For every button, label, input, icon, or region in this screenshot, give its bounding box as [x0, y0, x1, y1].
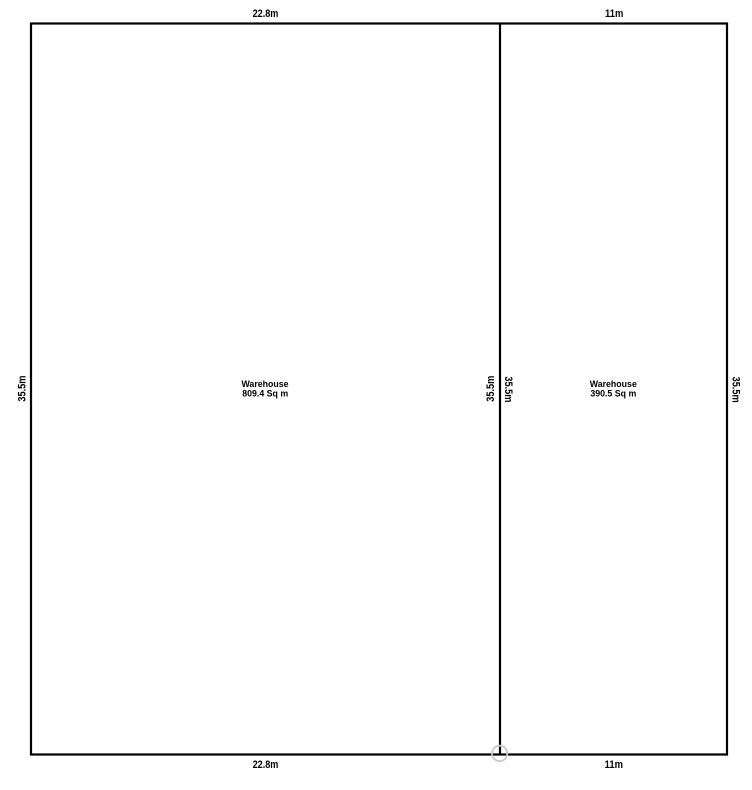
svg-text:35.5m: 35.5m	[730, 377, 742, 403]
svg-text:11m: 11m	[605, 759, 623, 771]
svg-text:35.5m: 35.5m	[485, 376, 497, 402]
svg-text:809.4 Sq m: 809.4 Sq m	[242, 388, 288, 398]
svg-text:35.5m: 35.5m	[16, 376, 28, 402]
svg-text:22.8m: 22.8m	[253, 8, 279, 20]
svg-text:22.8m: 22.8m	[253, 759, 279, 771]
svg-text:35.5m: 35.5m	[502, 376, 514, 402]
svg-text:11m: 11m	[605, 8, 623, 20]
svg-text:390.5 Sq m: 390.5 Sq m	[590, 388, 636, 398]
